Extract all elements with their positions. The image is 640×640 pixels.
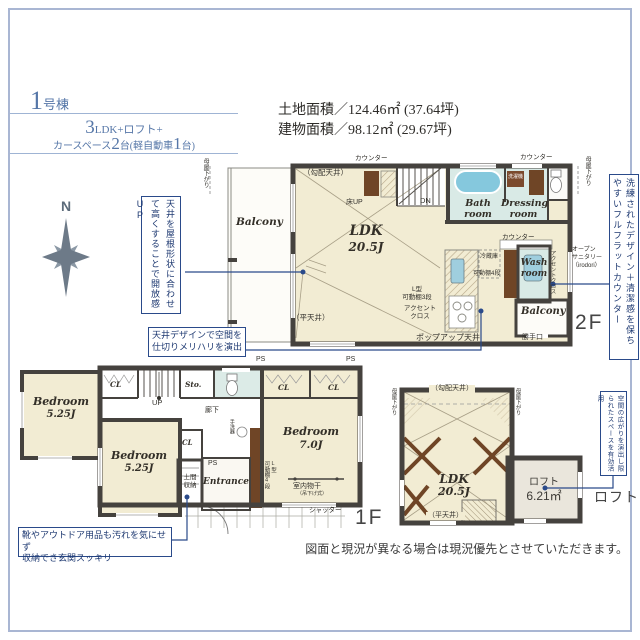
stairs-down-label: DN [420, 197, 431, 206]
floor-up-label: 床UP [346, 199, 363, 207]
hand-wash-label: 手洗器 [228, 419, 234, 441]
counter-label-2f-mid: カウンター [502, 234, 535, 242]
callout-ceiling-design: 天井デザインで空間を 仕切りメリハリを演出 [148, 327, 246, 357]
compass-rose [42, 218, 90, 297]
washer-label: 洗濯機 [507, 175, 524, 181]
callout-loft-space: 空間の広がりを演出し限られたスペースを有効活用 [600, 391, 627, 476]
carspace-spec: カースペース2台(軽自動車1台) [10, 134, 238, 154]
shutter-label: シャッター [309, 507, 342, 515]
floorplan-flyer: 1号棟 3LDK+ロフト+ カースペース2台(軽自動車1台) 土地面積／124.… [0, 0, 640, 640]
accent-cloth-label-2f: アクセント クロス [399, 305, 441, 320]
moya-sagari-loft-right: 母屋下がり [514, 388, 520, 428]
cl-label-mid: CL [182, 439, 193, 447]
ps-label-3: PS [208, 460, 217, 468]
room-label-dressing: Dressing room [501, 198, 546, 220]
l-shelf-label-2f: L型 可動棚3段 [394, 286, 440, 301]
room-label-balcony-left: Balcony [236, 216, 283, 228]
floor-label-2f: 2F [575, 311, 604, 335]
cl-label-bed3-right: CL [328, 384, 339, 393]
popup-ceiling-label: ポップアップ天井 [416, 333, 480, 342]
shelf4-label-2f: 可動棚4段 [473, 271, 500, 278]
moya-sagari-loft-left: 母屋下がり [390, 388, 396, 428]
room-label-bedroom1: Bedroom 5.25J [24, 396, 98, 421]
room-label-wash: Wash room [518, 258, 550, 279]
callout-ceiling-height: 天井を屋根形状に合わせて高くすることで開放感UP [141, 196, 181, 314]
back-door-label: 勝手口 [522, 334, 543, 342]
building-title: 1号棟 [30, 86, 69, 117]
room-label-bedroom3: Bedroom 7.0J [268, 426, 354, 451]
stairs-up-label: UP [152, 399, 162, 408]
cl-label-top: CL [110, 381, 121, 390]
storage-label: Sto. [185, 381, 201, 390]
disclaimer-text: 図面と現況が異なる場合は現況優先とさせていただきます。 [305, 542, 628, 556]
callout-genkan-storage: 靴やアウトドア用品も汚れを気にせず 収納でき玄関スッキリ [18, 527, 172, 557]
ps-label-1: PS [256, 356, 265, 364]
land-area: 土地面積／124.46㎡ (37.64坪) [278, 103, 459, 120]
moya-sagari-2f-left: 母屋下がり [201, 158, 208, 202]
accent-cloth-label-v: アクセントクロス [549, 250, 555, 302]
floor-label-loft: ロフト [594, 487, 639, 507]
indoor-drying-label: 室内物干 [293, 483, 321, 491]
room-label-loft: ロフト 6.21㎡ [510, 477, 578, 503]
slope-ceiling-loft: （勾配天井） [429, 385, 475, 393]
cl-label-bed3-left: CL [278, 384, 289, 393]
room-label-bath: Bath room [461, 198, 495, 220]
counter-label-2f-top-right: カウンター [520, 154, 553, 162]
plan-loft-graphics [402, 390, 580, 523]
building-area: 建物面積／98.12㎡ (29.67坪) [278, 123, 452, 140]
open-sanitary-label: オープン サニタリー （irodori） [572, 247, 602, 270]
compass-north-label: N [58, 198, 74, 215]
moya-sagari-2f-right: 母屋下がり [583, 156, 590, 200]
room-label-balcony-right: Balcony [521, 306, 566, 318]
floor-label-1f: 1F [355, 506, 384, 530]
fridge-label: 冷蔵庫 [480, 254, 498, 261]
flat-ceiling-loft: （平天井） [426, 512, 465, 520]
l-shelf-label-1f: L型 可動棚4段 [263, 461, 276, 505]
flat-ceiling-2f: （平天井） [292, 314, 330, 323]
indoor-drying-sub: （吊下げ式） [297, 492, 327, 498]
callout-flat-counter: 洗練されたデザイン＋清潔感を保ちやすいフルフラットカウンター [609, 174, 639, 360]
room-label-bedroom2: Bedroom 5.25J [102, 450, 176, 475]
doma-storage-label: 土間 収納 [181, 474, 199, 489]
hallway-label: 廊下 [205, 407, 219, 415]
ps-label-2: PS [346, 356, 355, 364]
slope-ceiling-2f: （勾配天井） [303, 169, 348, 178]
counter-label-2f-top-left: カウンター [355, 155, 388, 163]
room-label-ldk-2f: LDK 20.5J [334, 224, 398, 254]
room-label-entrance: Entrance [203, 477, 249, 488]
building-number: 1 [30, 86, 43, 115]
room-label-ldk-loft: LDK 20.5J [424, 472, 484, 499]
